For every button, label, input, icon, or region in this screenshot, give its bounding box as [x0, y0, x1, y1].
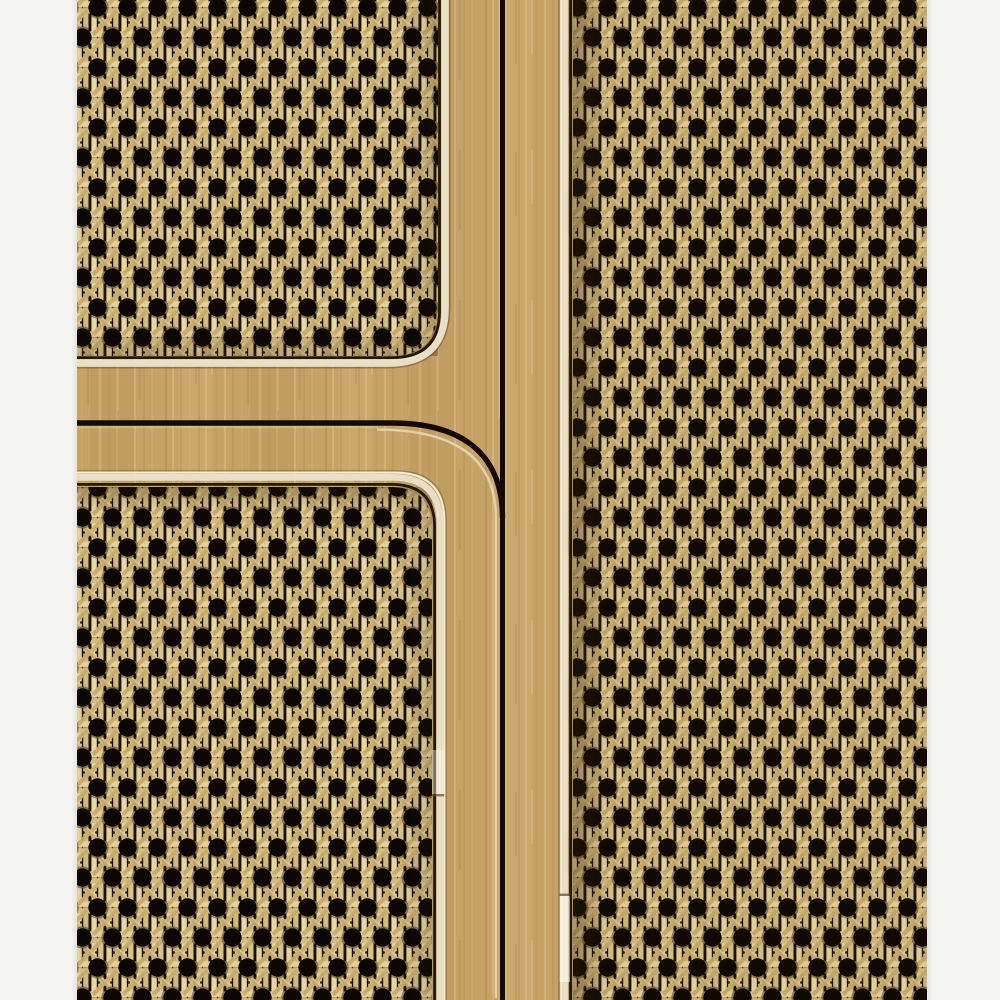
trim-bright-segment: [560, 896, 570, 982]
background-left-edge-shadow: [71, 0, 77, 1000]
trim-joint-line: [559, 894, 570, 896]
cane-shadow-top: [77, 487, 432, 513]
trim-joint-left: [432, 750, 444, 796]
cane-warm-tint: [573, 0, 927, 1000]
cane-panel-bottom-left: [30, 487, 432, 1000]
cane-shadow-right: [404, 0, 438, 356]
background-right-edge-shadow: [927, 0, 933, 1000]
trim-joint-right: [559, 894, 570, 982]
cane-shadow-bottom: [77, 330, 438, 356]
cane-shadow-right: [398, 500, 432, 1000]
cabinet-photo-svg: [0, 0, 1000, 1000]
cabinet: [30, 0, 993, 1000]
door-bottom-left: [30, 471, 446, 1000]
door-top-left: [30, 0, 450, 368]
trim-bright-segment: [432, 750, 443, 794]
cane-panel-top-left: [30, 0, 438, 356]
product-photo: Close-up of a light oak cabinet front wi…: [0, 0, 1000, 1000]
trim-joint-line: [432, 794, 444, 796]
